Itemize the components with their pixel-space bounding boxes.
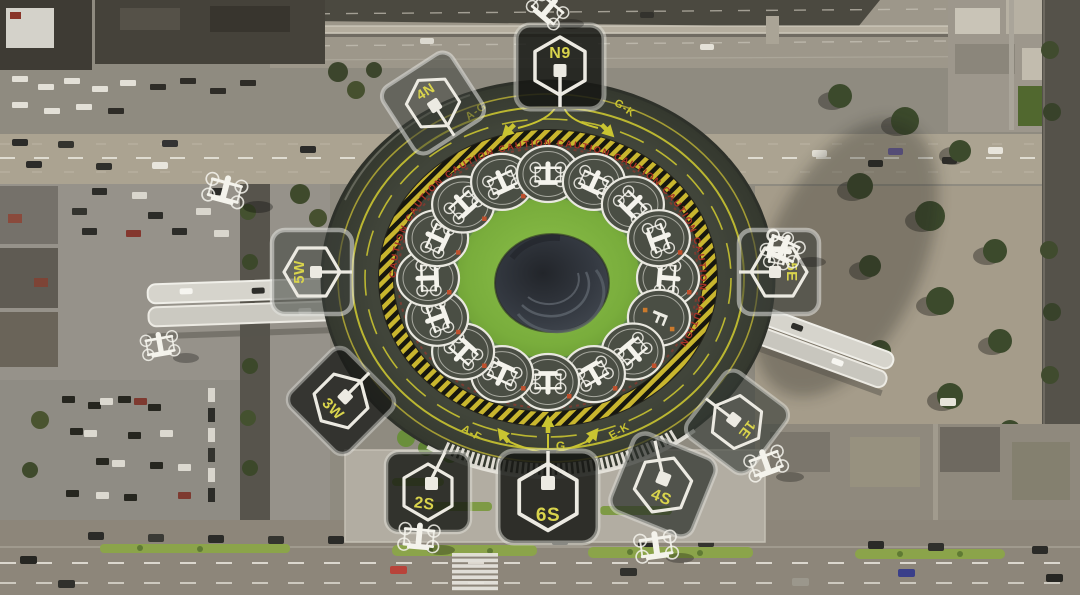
pad-badge-2s: 2S: [386, 452, 470, 532]
gate-badge-label: N9: [549, 45, 570, 62]
aerial-canvas: CAUTION CAUTION CAUTION CAUTION CAUTION …: [0, 0, 1080, 595]
pad-badge-5w: 5W: [272, 230, 352, 314]
pad-badge-5e: 5E: [739, 230, 819, 314]
aerial-scene: CAUTION CAUTION CAUTION CAUTION CAUTION …: [0, 0, 1080, 595]
central-atrium: [495, 234, 609, 332]
pad-badge-6s: 6S: [498, 451, 598, 543]
parking-lot-dense: [0, 380, 240, 520]
pad-square-icon: [554, 64, 567, 77]
pad-square-icon: [310, 266, 322, 278]
gate-badge-label: 6S: [536, 505, 560, 526]
gate-badge-label: 5W: [291, 260, 308, 284]
gate-badge-label: 2S: [413, 494, 436, 514]
pedestrian-bridge: [300, 26, 955, 33]
landing-pad: [628, 210, 690, 266]
pad-square-icon: [541, 476, 555, 490]
city-blocks-bottomright: [760, 424, 1080, 520]
pad-badge-n9: N9: [516, 25, 604, 109]
pad-square-icon: [425, 477, 438, 490]
